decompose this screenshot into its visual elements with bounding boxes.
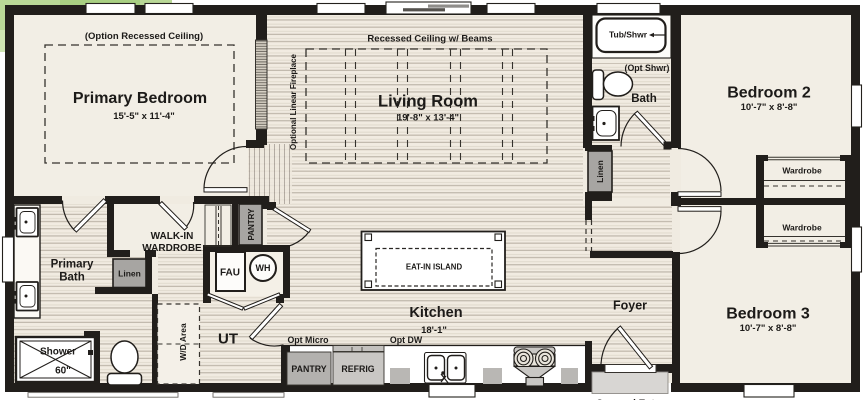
svg-text:Foyer: Foyer [613, 299, 647, 313]
svg-text:PANTRY: PANTRY [291, 364, 326, 374]
svg-text:Bath: Bath [631, 93, 657, 105]
svg-text:Opt Micro: Opt Micro [287, 335, 329, 345]
svg-text:Shower: Shower [40, 347, 76, 358]
svg-text:WH: WH [256, 263, 271, 273]
svg-text:Living Room: Living Room [378, 93, 478, 111]
svg-text:Primary Bedroom: Primary Bedroom [73, 90, 207, 107]
svg-text:Kitchen: Kitchen [409, 305, 462, 321]
svg-text:Linen: Linen [595, 160, 605, 183]
svg-text:Wardrobe: Wardrobe [782, 223, 822, 233]
svg-text:EAT-IN ISLAND: EAT-IN ISLAND [406, 263, 463, 272]
svg-text:Opt DW: Opt DW [390, 335, 423, 345]
svg-text:W/D Area: W/D Area [178, 323, 188, 361]
svg-text:Linen: Linen [118, 269, 141, 279]
svg-text:REFRIG: REFRIG [341, 364, 374, 374]
svg-text:10'-7" x 8'-8": 10'-7" x 8'-8" [741, 102, 798, 113]
svg-text:Recessed Ceiling w/ Beams: Recessed Ceiling w/ Beams [367, 34, 492, 45]
svg-text:(Option Recessed Ceiling): (Option Recessed Ceiling) [85, 31, 203, 42]
svg-text:Bath: Bath [59, 272, 85, 284]
svg-text:Bedroom 3: Bedroom 3 [726, 306, 810, 323]
svg-text:18'-1": 18'-1" [421, 325, 447, 336]
svg-text:19'-8" x 13'-4": 19'-8" x 13'-4" [397, 113, 459, 124]
svg-text:15'-5" x 11'-4": 15'-5" x 11'-4" [113, 111, 175, 122]
svg-text:(Opt Shwr): (Opt Shwr) [625, 63, 670, 73]
svg-text:WALK-IN: WALK-IN [151, 231, 194, 242]
svg-text:WARDROBE: WARDROBE [142, 243, 202, 254]
svg-text:60": 60" [55, 366, 71, 377]
svg-text:Primary: Primary [51, 259, 94, 271]
svg-text:UT: UT [218, 331, 238, 348]
svg-text:Bedroom 2: Bedroom 2 [727, 85, 811, 102]
svg-text:Optional Linear Fireplace: Optional Linear Fireplace [289, 53, 298, 150]
svg-text:PANTRY: PANTRY [247, 208, 256, 241]
svg-text:Wardrobe: Wardrobe [782, 166, 822, 176]
svg-text:10'-7" x 8'-8": 10'-7" x 8'-8" [740, 323, 797, 334]
svg-text:FAU: FAU [220, 268, 240, 279]
svg-text:Tub/Shwr: Tub/Shwr [609, 30, 648, 40]
